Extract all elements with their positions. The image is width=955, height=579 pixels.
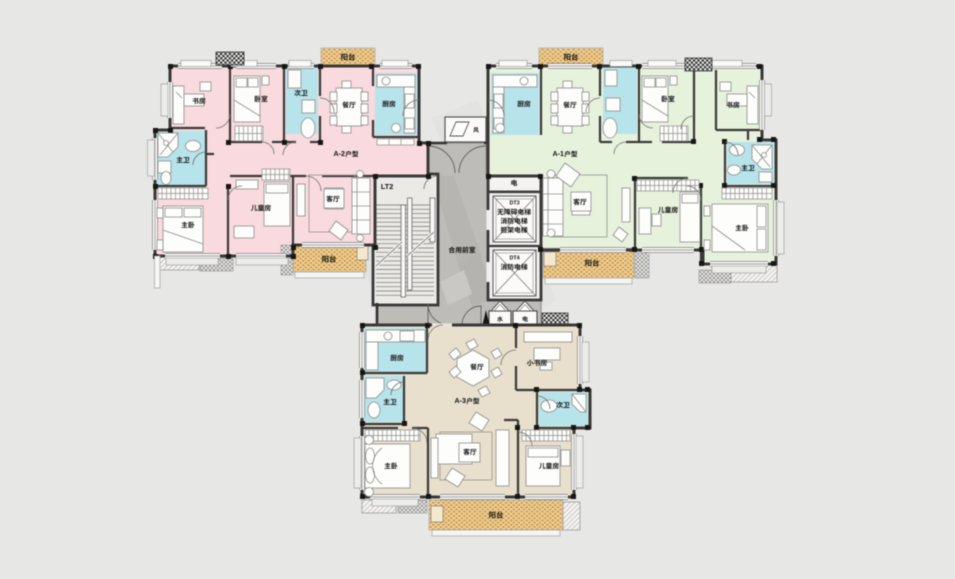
svg-text:DT3: DT3 (510, 201, 520, 207)
svg-text:DT4: DT4 (510, 256, 520, 262)
svg-text:A-3: A-3 (455, 397, 466, 405)
svg-text:LT2: LT2 (381, 182, 393, 191)
svg-text:A-1: A-1 (553, 150, 564, 158)
svg-text:A-2: A-2 (334, 150, 345, 158)
